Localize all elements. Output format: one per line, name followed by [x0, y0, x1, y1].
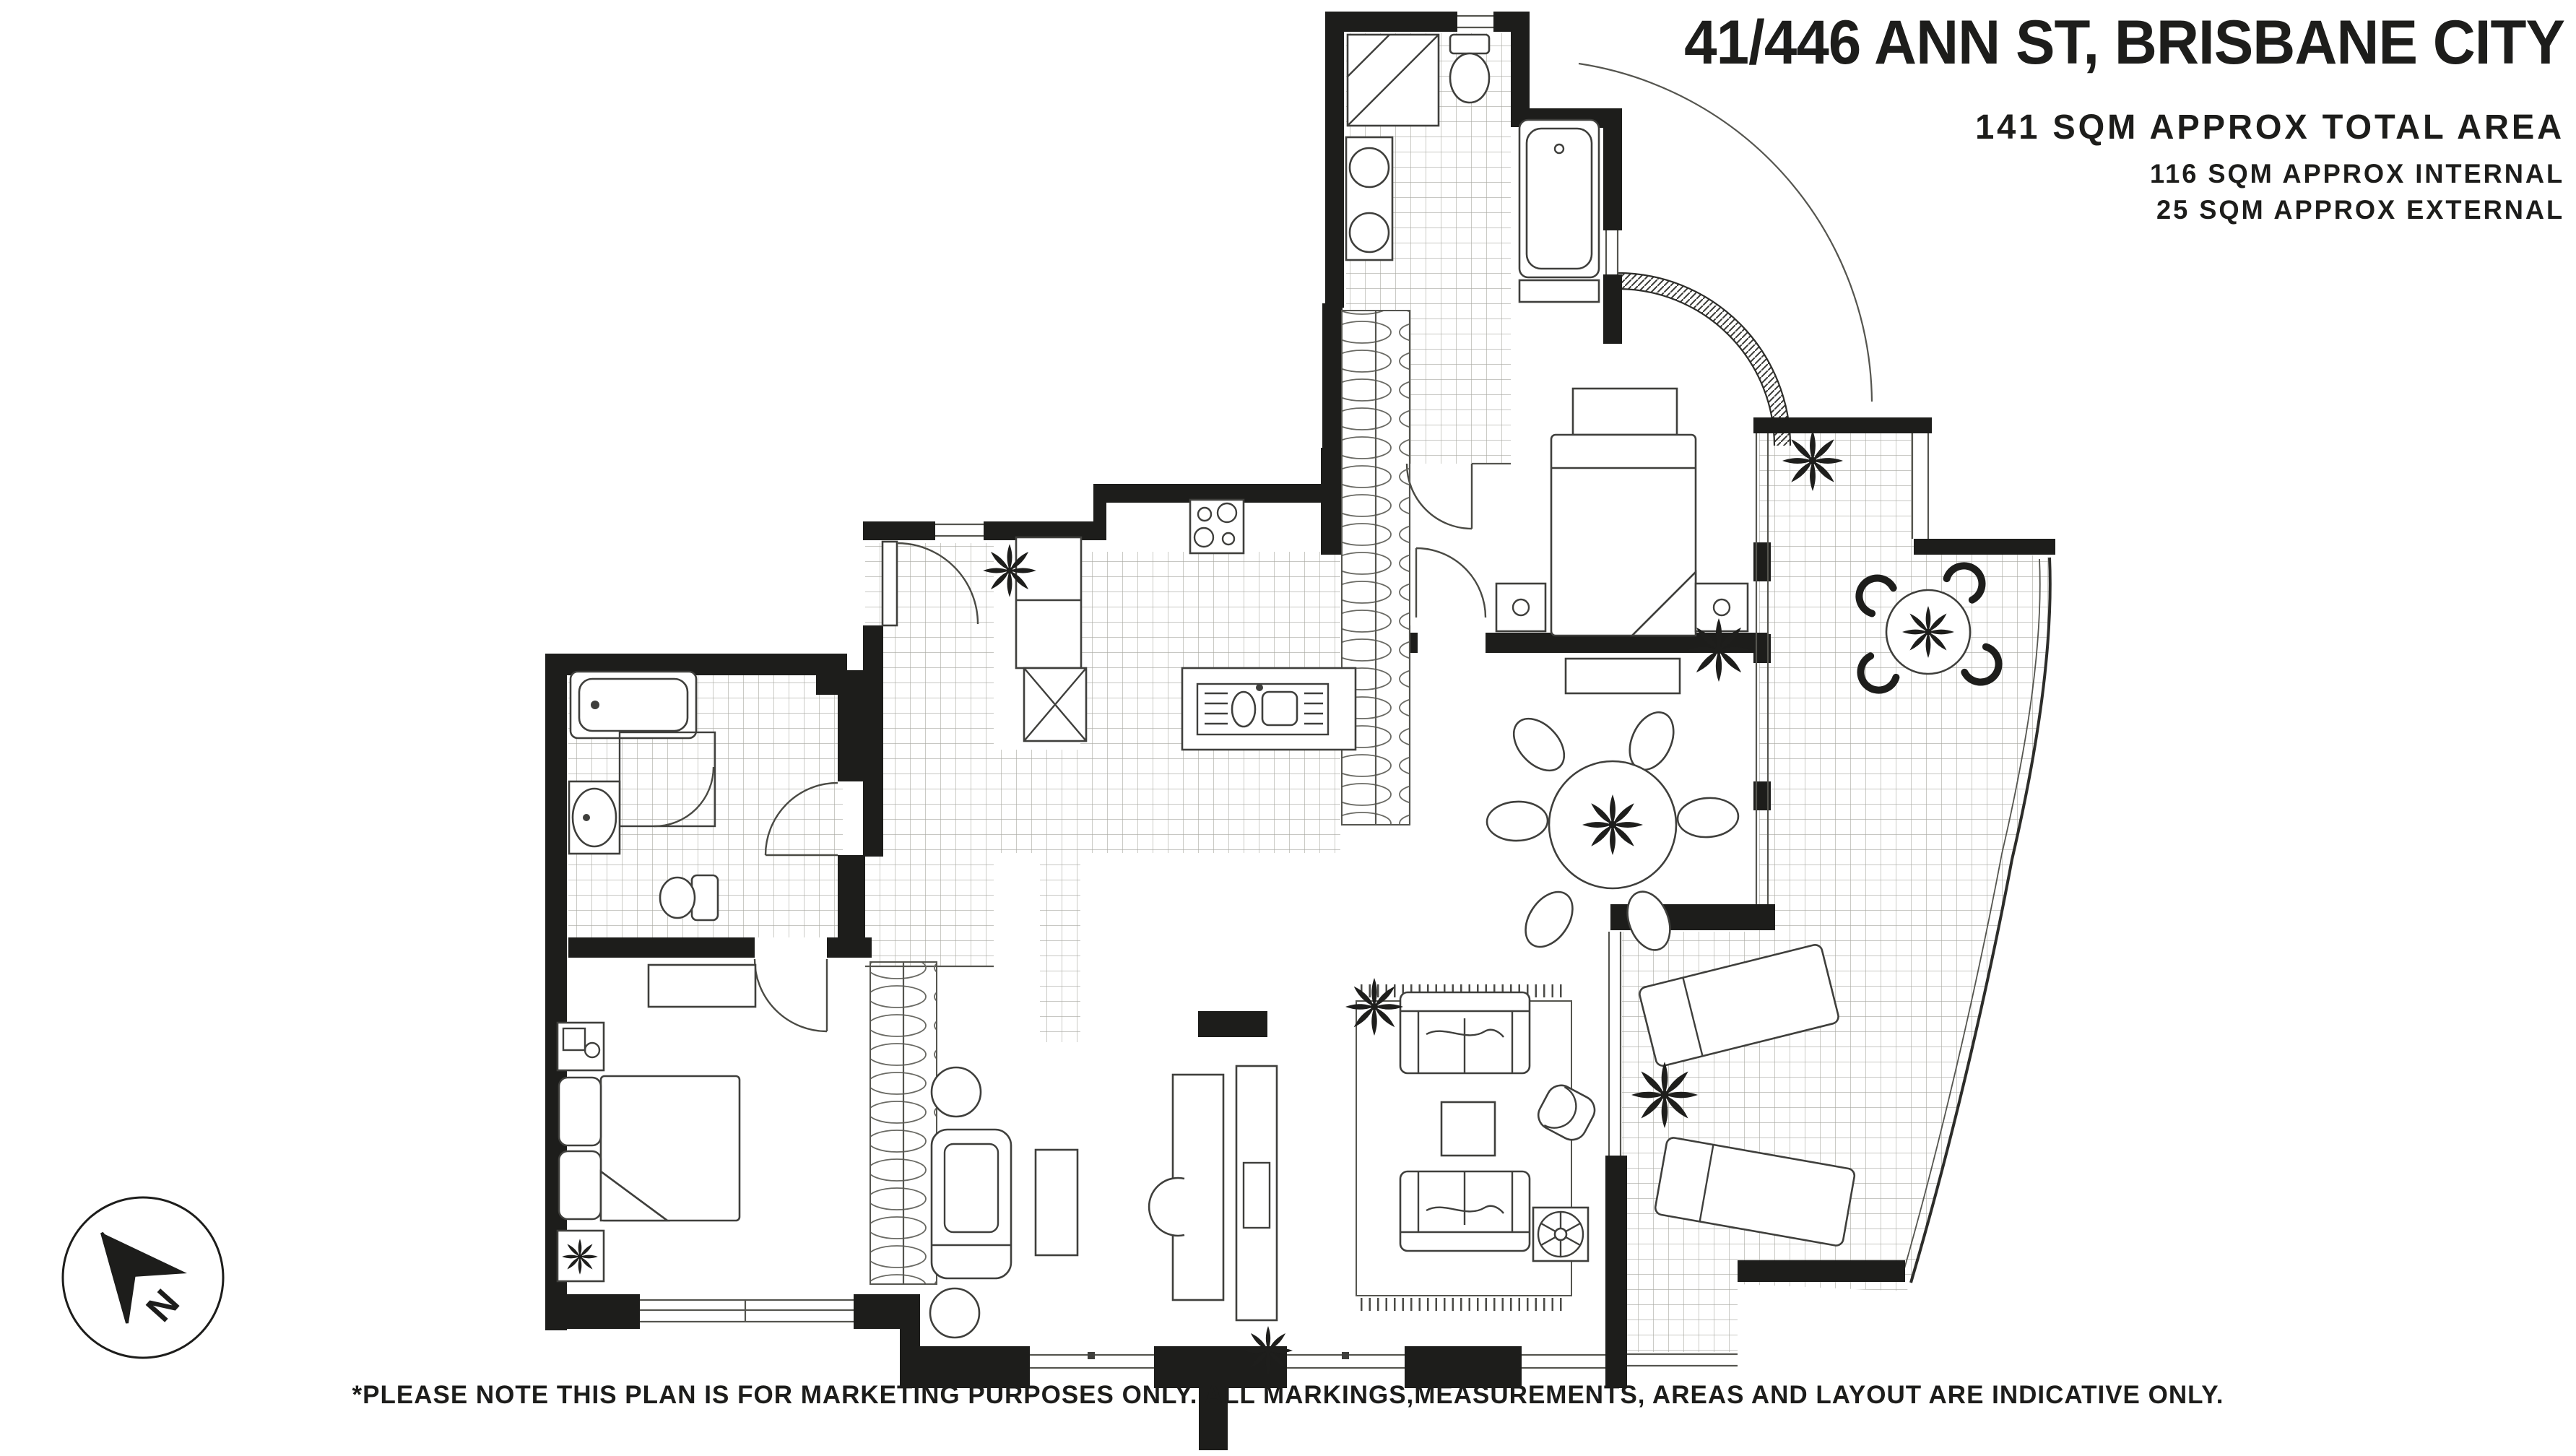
kitchen-tiles-west: [994, 750, 1080, 853]
floor-plan-page: N 41/446 ANN ST, BRISBANE CITY 141 SQM A…: [0, 0, 2576, 1456]
study-armchair-icon: [932, 1130, 1011, 1278]
dining-sideboard-icon: [1566, 659, 1680, 693]
bedroom2-bedside-table-bottom-icon: [558, 1231, 604, 1281]
study-side-table-top-icon: [932, 1067, 981, 1117]
master-bed-icon: [1551, 389, 1696, 636]
study-shelf-icon: [1236, 1066, 1277, 1320]
study-chair-icon: [1149, 1178, 1184, 1236]
area-total: 141 SQM APPROX TOTAL AREA: [1657, 108, 2564, 147]
compass-circle: [63, 1197, 223, 1358]
master-bedside-table-left-icon: [1496, 584, 1545, 631]
study-desk-icon: [1149, 1075, 1223, 1300]
bedroom2-wardrobe-icon: [870, 962, 937, 1284]
study-coffee-table-icon: [1036, 1150, 1077, 1255]
header: 41/446 ANN ST, BRISBANE CITY 141 SQM APP…: [1638, 7, 2564, 231]
area-external: 25 SQM APPROX EXTERNAL: [1657, 195, 2564, 225]
living-room-furniture: [1356, 991, 1600, 1304]
kitchen-joinery-column: [1016, 537, 1081, 668]
ensuite-shower-icon: [1348, 35, 1439, 126]
living-coffee-table-icon: [1441, 1102, 1495, 1156]
dining-plant-icon: [1687, 618, 1751, 682]
study-side-table-bottom-icon: [930, 1288, 979, 1338]
terrace-plant-bottom-icon: [1631, 1062, 1698, 1128]
kitchen-pantry-unit-icon: [1024, 668, 1086, 741]
kitchen-cooktop-icon: [1190, 500, 1244, 553]
bedroom2-door: [755, 959, 827, 1031]
living-armchair-icon: [1533, 1080, 1600, 1145]
ensuite-toilet-icon: [1450, 35, 1489, 103]
study-furniture: [930, 1066, 1277, 1338]
bathroom-toilet-icon: [660, 875, 718, 920]
study-plant-icon: [1244, 1326, 1293, 1375]
entry-plant-icon: [983, 544, 1036, 597]
living-sofa-top-icon: [1400, 992, 1530, 1073]
ensuite-basins-icon: [1346, 137, 1392, 260]
terrace-plant-top-icon: [1782, 430, 1843, 491]
dining-table-centrepiece: [1582, 794, 1643, 855]
living-plant-icon: [1345, 978, 1403, 1036]
area-internal: 116 SQM APPROX INTERNAL: [1657, 159, 2564, 189]
bedroom2-dresser-icon: [649, 965, 755, 1007]
kitchen-tiles-column: [1040, 853, 1080, 1042]
compass-north-label: N: [139, 1282, 188, 1330]
ensuite-hall-tiles: [1410, 311, 1511, 464]
page-title: 41/446 ANN ST, BRISBANE CITY: [1684, 7, 2564, 79]
north-arrow-compass: N: [63, 1197, 223, 1358]
bedroom2-bedside-table-top-icon: [558, 1023, 604, 1070]
master-bedside-table-right-icon: [1696, 584, 1748, 631]
kitchen-island-sink-icon: [1182, 668, 1356, 750]
living-fan-table-icon: [1533, 1208, 1588, 1261]
master-bedroom-door: [1416, 548, 1486, 617]
bathroom-bathtub-icon: [571, 672, 696, 738]
bedroom2-bed-icon: [559, 1076, 740, 1221]
bedroom2-furniture: [558, 965, 755, 1281]
ensuite-door: [1407, 464, 1472, 529]
ensuite-bathtub-icon: [1519, 120, 1599, 302]
living-sofa-bottom-icon: [1400, 1171, 1530, 1251]
bathroom-basin-icon: [569, 781, 620, 854]
disclaimer: *PLEASE NOTE THIS PLAN IS FOR MARKETING …: [0, 1381, 2576, 1410]
